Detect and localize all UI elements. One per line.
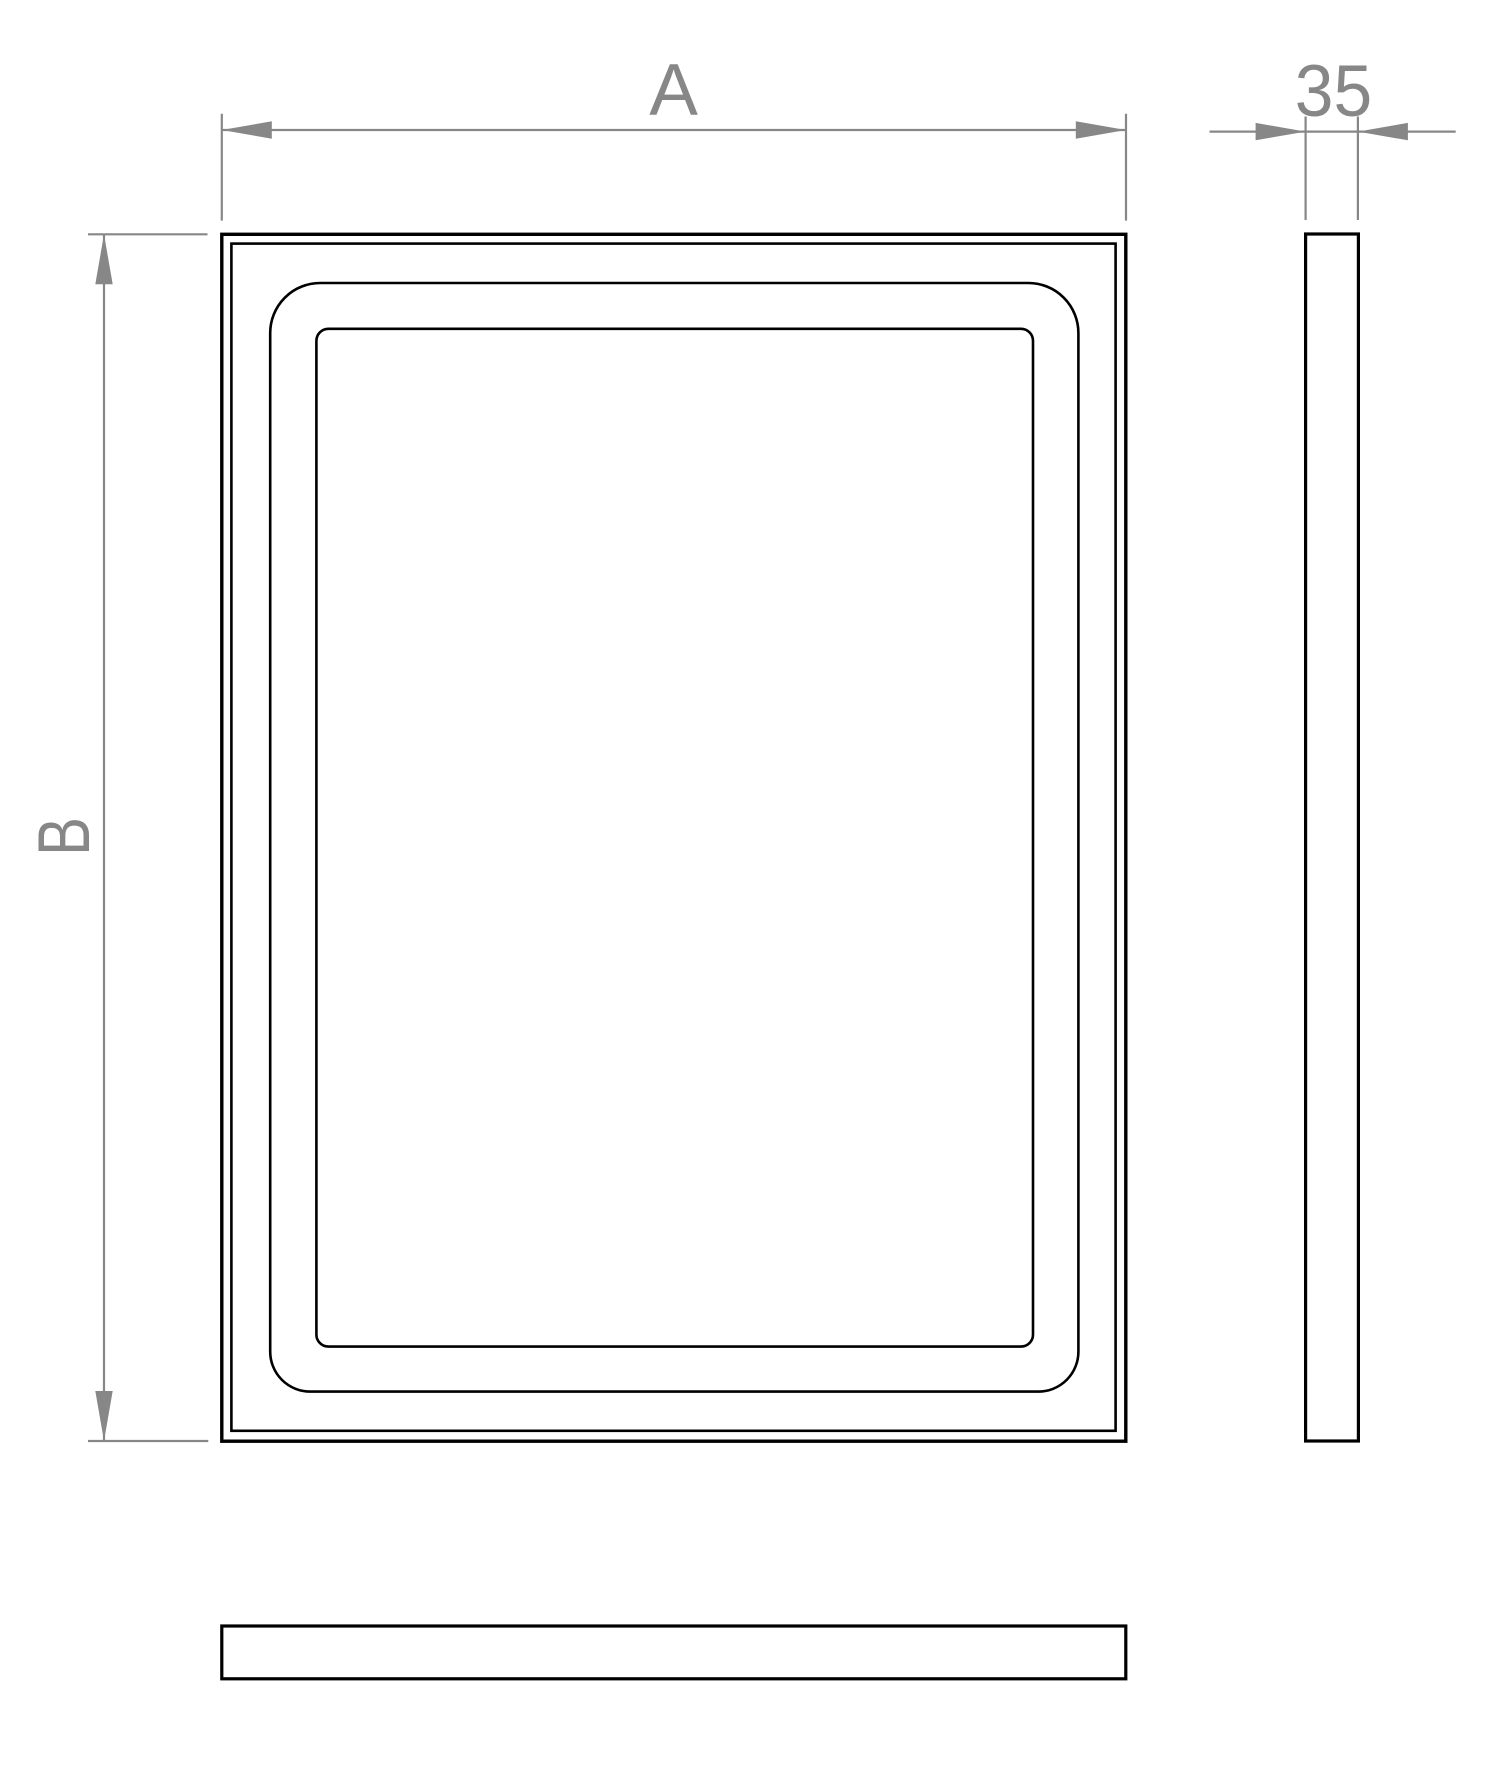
svg-text:A: A [649,50,698,131]
svg-text:B: B [24,817,105,856]
svg-text:35: 35 [1295,51,1372,132]
